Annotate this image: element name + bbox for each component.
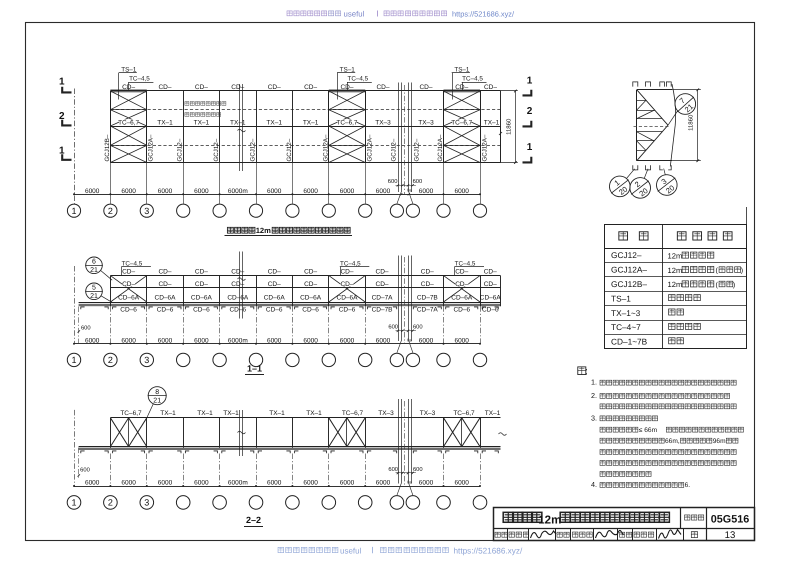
svg-text:6000: 6000: [158, 337, 173, 344]
svg-text:CD–: CD–: [455, 269, 468, 276]
svg-text:CD–: CD–: [158, 281, 171, 288]
svg-text:6.: 6.: [685, 482, 691, 489]
svg-text:6000: 6000: [454, 188, 469, 195]
svg-text:TX–1: TX–1: [197, 410, 213, 417]
svg-text:21: 21: [90, 267, 98, 274]
svg-text:GCJ12A–: GCJ12A–: [147, 134, 154, 161]
svg-text:TX–1: TX–1: [484, 119, 500, 126]
svg-text:CD–: CD–: [484, 84, 497, 91]
svg-text:CD–6A: CD–6A: [191, 294, 213, 301]
svg-text:CD–: CD–: [158, 84, 171, 91]
svg-text:TC–6,7: TC–6,7: [337, 120, 358, 127]
svg-text:): ): [741, 267, 743, 275]
svg-text:12m: 12m: [668, 251, 683, 260]
svg-text:6000: 6000: [376, 337, 391, 344]
svg-text:6000: 6000: [158, 188, 173, 195]
svg-text:https://521686.xyz/: https://521686.xyz/: [452, 9, 515, 18]
svg-text:CD–: CD–: [304, 269, 317, 276]
svg-text:6000m: 6000m: [228, 188, 248, 195]
svg-text:CD–7A: CD–7A: [372, 294, 394, 301]
svg-text:600: 600: [81, 325, 91, 332]
svg-text:CD–: CD–: [484, 281, 497, 288]
svg-text:11860: 11860: [688, 114, 695, 131]
svg-text:11860: 11860: [505, 118, 512, 135]
svg-text:6000: 6000: [303, 188, 318, 195]
svg-text:): ): [733, 281, 735, 289]
svg-text:CD–6: CD–6: [482, 306, 499, 313]
svg-text:1: 1: [527, 76, 533, 87]
svg-text:TC–6,7: TC–6,7: [118, 120, 139, 127]
svg-text:GCJ12–: GCJ12–: [611, 250, 642, 260]
svg-text:1: 1: [71, 206, 76, 216]
svg-text:12m: 12m: [668, 266, 683, 275]
svg-text:1: 1: [527, 142, 533, 153]
svg-text:6000: 6000: [121, 337, 136, 344]
svg-text:TX–1: TX–1: [194, 119, 210, 126]
svg-text:6000: 6000: [85, 188, 100, 195]
svg-text:0a: 0a: [407, 480, 412, 485]
svg-text:TX–1: TX–1: [157, 119, 173, 126]
svg-text:3: 3: [144, 206, 149, 216]
svg-text:https://521686.xyz/: https://521686.xyz/: [454, 546, 523, 555]
svg-text:6000: 6000: [419, 188, 434, 195]
svg-text:CD–: CD–: [304, 281, 317, 288]
svg-text:TX–1: TX–1: [303, 119, 319, 126]
svg-text:CD–: CD–: [376, 269, 389, 276]
svg-text:CD–7B: CD–7B: [417, 294, 438, 301]
svg-text:CD–1~7B: CD–1~7B: [611, 337, 648, 347]
svg-text:CD–: CD–: [268, 281, 281, 288]
svg-text:2: 2: [108, 498, 113, 508]
svg-text:6000: 6000: [267, 480, 282, 487]
svg-text:6000: 6000: [121, 188, 136, 195]
svg-text:CD–6: CD–6: [120, 306, 137, 313]
svg-text:TC–6,7: TC–6,7: [342, 410, 364, 417]
svg-text:6000: 6000: [340, 480, 355, 487]
svg-text:：: ：: [584, 367, 593, 377]
svg-text:TX–3: TX–3: [420, 410, 436, 417]
svg-text:GCJ12B–: GCJ12B–: [104, 134, 111, 161]
svg-text:CD–6A: CD–6A: [480, 294, 502, 301]
svg-text:GCJ12–: GCJ12–: [250, 138, 257, 161]
svg-text:12m: 12m: [538, 514, 561, 526]
svg-text:CD–: CD–: [158, 269, 171, 276]
svg-text:CD–6: CD–6: [266, 306, 283, 313]
svg-text:2: 2: [108, 355, 113, 365]
svg-text:66m,: 66m,: [665, 438, 680, 445]
svg-text:6000: 6000: [85, 480, 100, 487]
svg-text:1.: 1.: [591, 378, 597, 387]
svg-text:6000: 6000: [454, 480, 469, 487]
svg-text:600: 600: [80, 466, 90, 473]
svg-text:8: 8: [155, 389, 159, 396]
svg-text:6000: 6000: [419, 480, 434, 487]
svg-text:TX–1~3: TX–1~3: [611, 308, 641, 318]
svg-text:CD–6A: CD–6A: [155, 294, 177, 301]
svg-text:600: 600: [388, 324, 398, 331]
svg-text:6000: 6000: [121, 480, 136, 487]
svg-text:2.: 2.: [591, 391, 597, 400]
svg-text:TX–1: TX–1: [223, 410, 239, 417]
svg-text:TS–1: TS–1: [611, 293, 631, 303]
svg-text:TX–1: TX–1: [485, 410, 501, 417]
svg-text:TC–6,7: TC–6,7: [453, 410, 475, 417]
svg-text:CD–: CD–: [268, 269, 281, 276]
svg-text:CD–7A: CD–7A: [417, 306, 439, 313]
svg-text:TX–3: TX–3: [378, 410, 394, 417]
svg-text:CD–6A: CD–6A: [118, 294, 140, 301]
svg-text:CD–: CD–: [340, 281, 353, 288]
svg-text:96m: 96m: [713, 438, 726, 445]
svg-text:GCJ12–: GCJ12–: [390, 138, 397, 161]
svg-text:1: 1: [59, 77, 65, 88]
svg-text:TX–1: TX–1: [230, 119, 246, 126]
svg-text:TC–4,5: TC–4,5: [347, 76, 368, 83]
svg-text:CD–: CD–: [421, 269, 434, 276]
svg-text:6000: 6000: [303, 337, 318, 344]
svg-text:CD–6: CD–6: [229, 306, 246, 313]
svg-text:CD–6A: CD–6A: [227, 294, 249, 301]
svg-text:6000: 6000: [454, 337, 469, 344]
svg-text:GCJ12–: GCJ12–: [177, 138, 184, 161]
svg-text:21: 21: [90, 293, 98, 300]
svg-text:1: 1: [71, 498, 76, 508]
svg-text:21: 21: [153, 397, 161, 404]
svg-text:CD–: CD–: [376, 281, 389, 288]
svg-text:GCJ12B–: GCJ12B–: [611, 279, 647, 289]
svg-text:CD–: CD–: [304, 84, 317, 91]
svg-text:6000: 6000: [419, 337, 434, 344]
svg-text:600: 600: [388, 178, 398, 185]
svg-text:6000: 6000: [267, 188, 282, 195]
svg-text:0a: 0a: [407, 187, 412, 192]
svg-text:6000: 6000: [194, 480, 209, 487]
svg-text:CD–: CD–: [195, 281, 208, 288]
svg-text:600: 600: [413, 324, 423, 331]
svg-text:2–2: 2–2: [246, 515, 261, 525]
svg-text:CD–: CD–: [268, 84, 281, 91]
svg-text:CD–: CD–: [484, 269, 497, 276]
svg-text:TX–1: TX–1: [160, 410, 176, 417]
svg-text:6000: 6000: [194, 337, 209, 344]
svg-text:TX–1: TX–1: [306, 410, 322, 417]
svg-text:TC–6,7: TC–6,7: [451, 120, 472, 127]
svg-text:CD–6A: CD–6A: [451, 294, 473, 301]
svg-text:GCJ12–: GCJ12–: [213, 138, 220, 161]
svg-text:CD–6: CD–6: [302, 306, 319, 313]
svg-text:6000: 6000: [267, 337, 282, 344]
svg-text:6000: 6000: [303, 480, 318, 487]
svg-text:GCJ12A–: GCJ12A–: [437, 134, 444, 161]
svg-text:6000: 6000: [158, 480, 173, 487]
svg-text:CD–6: CD–6: [453, 306, 470, 313]
svg-text:1–1: 1–1: [247, 364, 262, 374]
svg-text:CD–6: CD–6: [193, 306, 210, 313]
svg-text:6000m: 6000m: [228, 337, 248, 344]
svg-text:CD–: CD–: [195, 269, 208, 276]
svg-text:CD–: CD–: [376, 84, 389, 91]
svg-text:600: 600: [388, 466, 398, 473]
svg-text:6000: 6000: [376, 188, 391, 195]
svg-text:TC–4~7: TC–4~7: [611, 322, 641, 332]
svg-text:CD–6: CD–6: [339, 306, 356, 313]
svg-text:CD–6: CD–6: [157, 306, 174, 313]
svg-text:13: 13: [725, 530, 736, 541]
svg-text:05G516: 05G516: [711, 513, 749, 525]
svg-text:6000: 6000: [376, 480, 391, 487]
svg-text:1: 1: [71, 355, 76, 365]
svg-text:CD–: CD–: [455, 281, 468, 288]
svg-text:600: 600: [413, 466, 423, 473]
svg-text:CD–6A: CD–6A: [264, 294, 286, 301]
svg-text:6000: 6000: [85, 337, 100, 344]
svg-text:0a: 0a: [407, 337, 412, 342]
svg-text:TX–1: TX–1: [266, 119, 282, 126]
svg-text:600: 600: [413, 178, 423, 185]
svg-text:CD–6A: CD–6A: [300, 294, 322, 301]
svg-text:5: 5: [92, 285, 96, 292]
svg-text:CD–6A: CD–6A: [337, 294, 359, 301]
svg-text:useful: useful: [340, 546, 362, 555]
svg-text:3: 3: [144, 498, 149, 508]
svg-text:4.: 4.: [591, 480, 597, 489]
svg-text:CD–: CD–: [231, 84, 244, 91]
svg-text:≤ 66m: ≤ 66m: [639, 427, 658, 434]
svg-text:GCJ12–: GCJ12–: [413, 138, 420, 161]
svg-text:3: 3: [144, 355, 149, 365]
svg-text:useful: useful: [344, 9, 365, 18]
svg-text:12m: 12m: [256, 226, 271, 235]
svg-text:6000: 6000: [340, 337, 355, 344]
svg-text:CD–: CD–: [419, 84, 432, 91]
svg-text:6000: 6000: [340, 188, 355, 195]
svg-text:3.: 3.: [591, 413, 597, 422]
svg-text:TX–3: TX–3: [418, 119, 434, 126]
svg-text:GCJ12A–: GCJ12A–: [367, 134, 374, 161]
svg-text:GCJ12A–: GCJ12A–: [611, 265, 647, 275]
svg-text:TC–4,5: TC–4,5: [129, 76, 150, 83]
svg-text:2: 2: [527, 106, 533, 117]
svg-text:TC–4,5: TC–4,5: [462, 76, 483, 83]
svg-text:CD–: CD–: [195, 84, 208, 91]
svg-text:6000m: 6000m: [228, 480, 248, 487]
svg-text:TC–6,7: TC–6,7: [120, 410, 142, 417]
svg-text:GCJ12–: GCJ12–: [286, 138, 293, 161]
svg-text:6: 6: [92, 259, 96, 266]
svg-text:CD–: CD–: [122, 281, 135, 288]
svg-text:GCJ12A–: GCJ12A–: [322, 134, 329, 161]
svg-text:CD–: CD–: [455, 84, 468, 91]
svg-text:CD–: CD–: [122, 269, 135, 276]
svg-text:TX–1: TX–1: [269, 410, 285, 417]
svg-text:12m: 12m: [668, 280, 683, 289]
svg-text:CD–7B: CD–7B: [372, 306, 393, 313]
svg-text:2: 2: [108, 206, 113, 216]
svg-text:CD–: CD–: [340, 269, 353, 276]
svg-text:GCJ12A–: GCJ12A–: [481, 134, 488, 161]
svg-text:TX–3: TX–3: [375, 119, 391, 126]
svg-text:CD–: CD–: [421, 281, 434, 288]
svg-text:6000: 6000: [194, 188, 209, 195]
